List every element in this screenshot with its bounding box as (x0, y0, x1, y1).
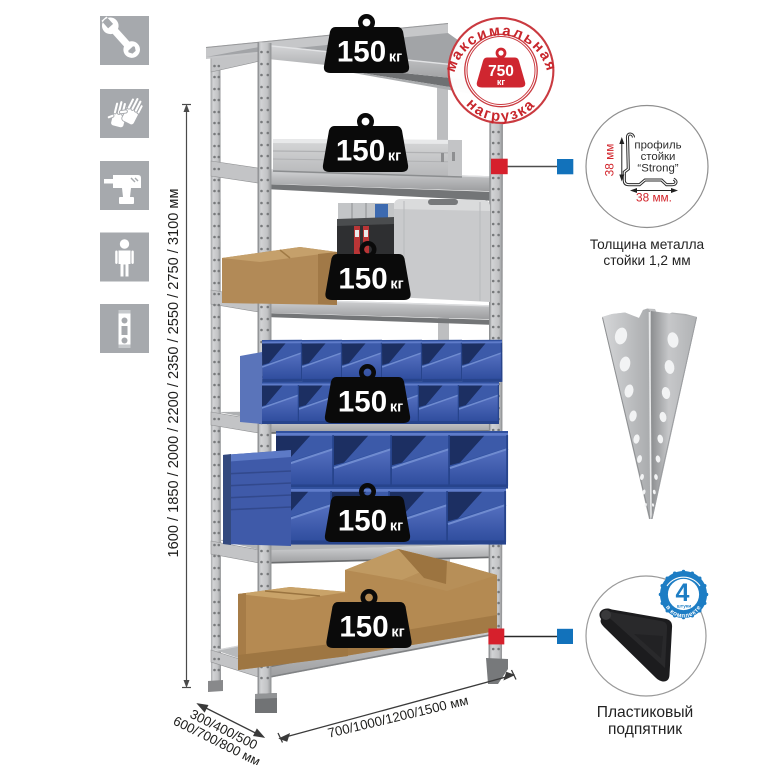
svg-text:1600 / 1850 / 2000 / 2200 / 23: 1600 / 1850 / 2000 / 2200 / 2350 / 2550 … (166, 189, 182, 558)
svg-text:стойки 1,2 мм: стойки 1,2 мм (603, 253, 690, 268)
svg-text:кг: кг (497, 77, 506, 87)
svg-text:38 мм: 38 мм (603, 144, 617, 177)
svg-text:Пластиковый: Пластиковый (597, 704, 694, 721)
svg-text:профиль: профиль (634, 140, 681, 152)
svg-text:4: 4 (676, 579, 690, 607)
svg-text:стойки: стойки (641, 151, 676, 163)
svg-text:“Strong”: “Strong” (637, 163, 678, 175)
svg-text:38 мм.: 38 мм. (636, 191, 672, 205)
svg-text:Толщина металла: Толщина металла (590, 237, 705, 252)
svg-text:подпятник: подпятник (608, 721, 682, 738)
svg-text:штуки: штуки (677, 605, 692, 610)
